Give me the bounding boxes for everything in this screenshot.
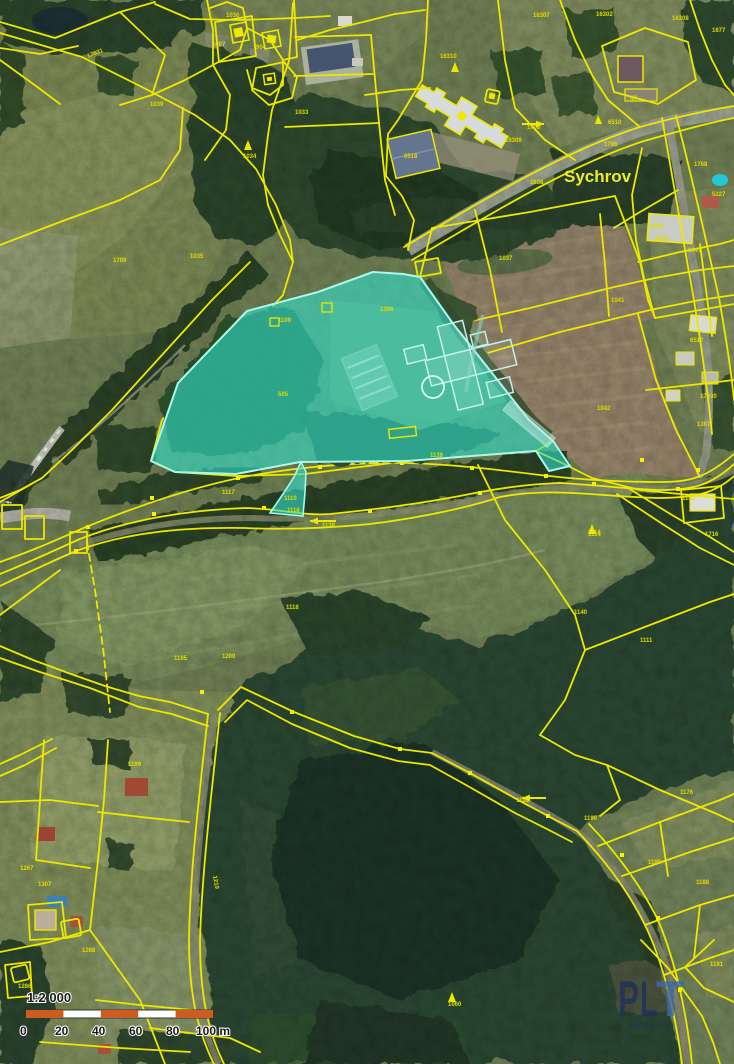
svg-text:1307: 1307 xyxy=(697,422,711,428)
svg-text:Sychrov: Sychrov xyxy=(564,167,632,186)
svg-text:60: 60 xyxy=(129,1024,143,1038)
svg-text:1191: 1191 xyxy=(710,962,724,968)
svg-text:1768: 1768 xyxy=(694,162,708,168)
svg-text:16302: 16302 xyxy=(596,12,613,18)
svg-text:1142: 1142 xyxy=(682,496,696,502)
svg-text:1180: 1180 xyxy=(648,860,662,866)
svg-text:16309: 16309 xyxy=(505,138,522,144)
svg-text:6516: 6516 xyxy=(655,236,669,242)
svg-text:1267: 1267 xyxy=(20,866,34,872)
svg-text:1036: 1036 xyxy=(226,13,240,19)
svg-text:1007: 1007 xyxy=(212,42,226,48)
svg-text:100 m: 100 m xyxy=(196,1024,230,1038)
svg-text:6517: 6517 xyxy=(690,338,704,344)
svg-text:REALITY: REALITY xyxy=(630,1020,671,1030)
svg-text:T: T xyxy=(656,971,685,1027)
svg-text:0: 0 xyxy=(20,1024,27,1038)
svg-text:505: 505 xyxy=(278,392,289,398)
svg-text:16308: 16308 xyxy=(672,16,689,22)
svg-text:1111: 1111 xyxy=(640,638,653,644)
svg-text:1033: 1033 xyxy=(295,110,309,116)
svg-text:47: 47 xyxy=(630,96,637,102)
svg-text:1035: 1035 xyxy=(190,254,204,260)
svg-text:1060: 1060 xyxy=(448,1002,462,1008)
svg-text:1139: 1139 xyxy=(430,453,444,459)
svg-text:1140: 1140 xyxy=(574,610,588,616)
svg-text:1306: 1306 xyxy=(380,307,394,313)
svg-text:1307: 1307 xyxy=(38,882,52,888)
svg-text:1042: 1042 xyxy=(597,406,611,412)
svg-text:16310: 16310 xyxy=(440,54,457,60)
svg-text:1037: 1037 xyxy=(499,256,513,262)
svg-text:1116: 1116 xyxy=(287,508,300,514)
svg-text:1047: 1047 xyxy=(688,248,702,254)
svg-text:1040: 1040 xyxy=(650,224,664,230)
svg-text:1188: 1188 xyxy=(696,880,710,886)
svg-text:1109: 1109 xyxy=(278,318,292,324)
svg-text:6518: 6518 xyxy=(404,154,418,160)
svg-text:40: 40 xyxy=(92,1024,106,1038)
svg-text:17030: 17030 xyxy=(700,394,717,400)
svg-text:1706: 1706 xyxy=(604,142,618,148)
svg-text:1716: 1716 xyxy=(705,532,719,538)
svg-text:80: 80 xyxy=(166,1024,180,1038)
svg-text:1118: 1118 xyxy=(286,605,299,611)
svg-text:1034: 1034 xyxy=(243,154,257,160)
svg-text:1268: 1268 xyxy=(82,948,96,954)
svg-text:1039: 1039 xyxy=(150,102,164,108)
svg-text:1677: 1677 xyxy=(712,28,726,34)
svg-text:P: P xyxy=(618,971,639,1027)
svg-text:5227: 5227 xyxy=(712,192,726,198)
svg-text:1195: 1195 xyxy=(174,656,188,662)
svg-text:1200: 1200 xyxy=(222,654,236,660)
svg-text:16307: 16307 xyxy=(533,13,550,19)
svg-text:1176: 1176 xyxy=(680,790,694,796)
svg-text:1117: 1117 xyxy=(222,490,235,496)
svg-text:1110: 1110 xyxy=(284,496,297,502)
svg-text:1199: 1199 xyxy=(128,762,142,768)
svg-text:1799: 1799 xyxy=(113,258,127,264)
svg-text:1041: 1041 xyxy=(611,298,625,304)
svg-text:1:2 000: 1:2 000 xyxy=(27,990,71,1005)
svg-text:1190: 1190 xyxy=(584,816,598,822)
svg-text:6510: 6510 xyxy=(608,120,622,126)
svg-text:20: 20 xyxy=(55,1024,69,1038)
svg-text:1638: 1638 xyxy=(530,180,544,186)
svg-text:1138: 1138 xyxy=(322,523,336,529)
